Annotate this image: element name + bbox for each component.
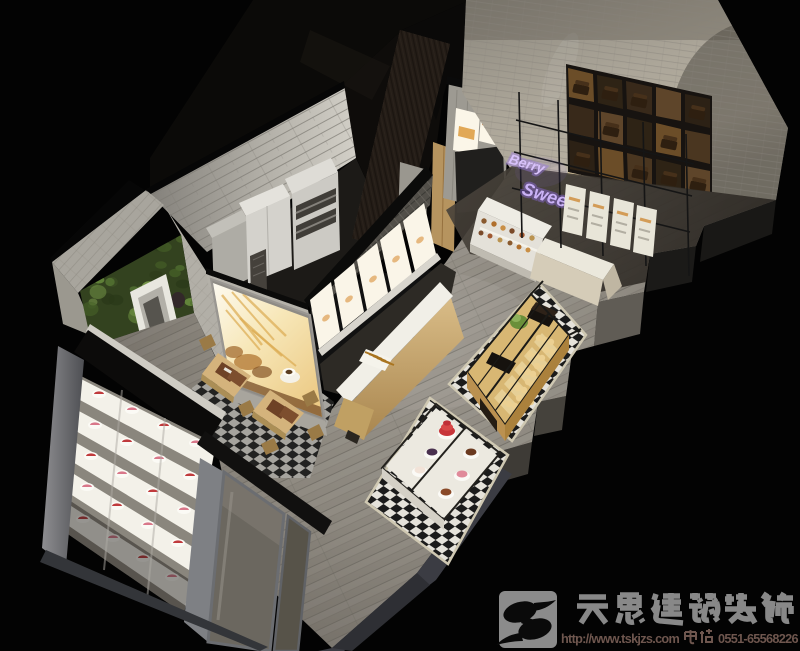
svg-text:0551-65568226: 0551-65568226: [718, 632, 798, 646]
svg-text:http://www.tskjzs.com: http://www.tskjzs.com: [561, 632, 679, 646]
